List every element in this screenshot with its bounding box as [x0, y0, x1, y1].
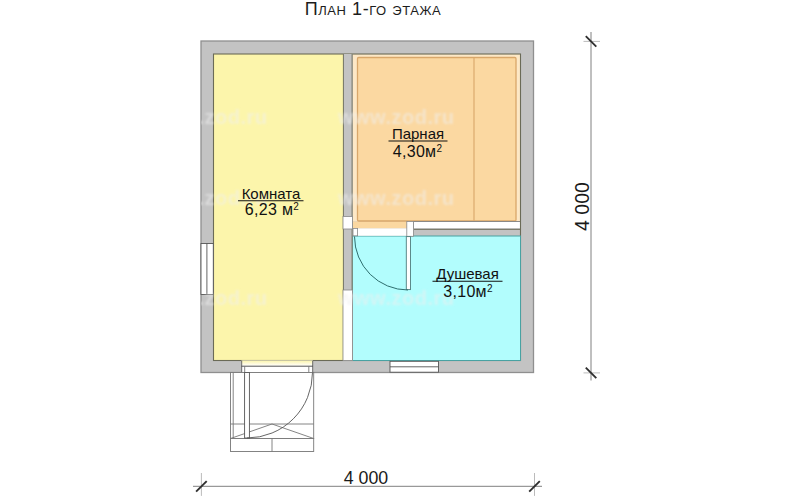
- svg-text:Душевая: Душевая: [436, 265, 499, 282]
- svg-text:Парная: Парная: [392, 125, 444, 142]
- svg-text:www.zod.ru: www.zod.ru: [337, 187, 454, 209]
- svg-text:6,23 м2: 6,23 м2: [245, 201, 299, 218]
- svg-text:4 000: 4 000: [344, 468, 389, 488]
- svg-text:Комната: Комната: [242, 185, 301, 202]
- svg-text:4,30м2: 4,30м2: [393, 143, 443, 160]
- svg-text:4 000: 4 000: [571, 182, 593, 231]
- svg-text:www.zod.ru: www.zod.ru: [337, 287, 454, 309]
- svg-text:План 1-го этажа: План 1-го этажа: [305, 0, 441, 19]
- svg-text:3,10м2: 3,10м2: [443, 283, 493, 300]
- svg-text:www.zod.ru: www.zod.ru: [337, 106, 454, 128]
